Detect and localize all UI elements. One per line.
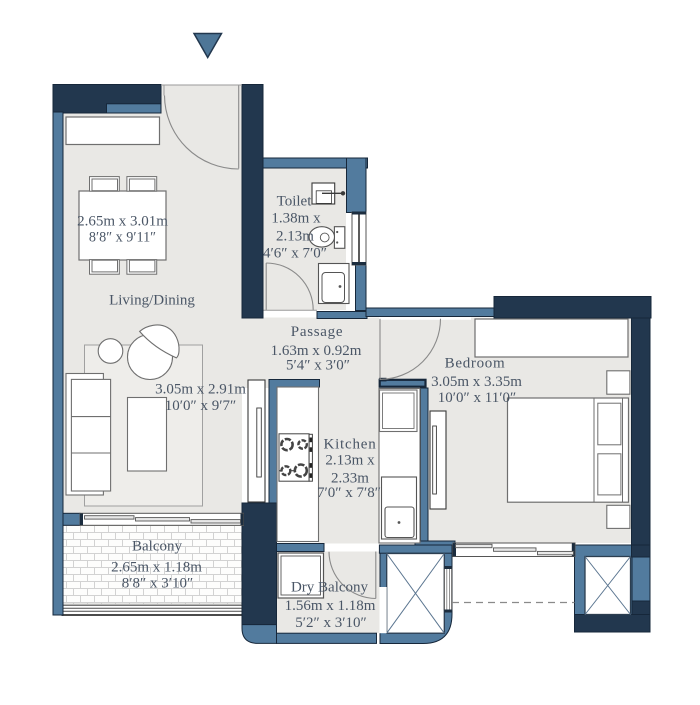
svg-text:Living/Dining: Living/Dining	[109, 293, 195, 309]
svg-text:2.13m: 2.13m	[276, 229, 314, 245]
svg-text:5′4″ x 3′0″: 5′4″ x 3′0″	[286, 358, 350, 374]
svg-text:Toilet: Toilet	[277, 194, 313, 210]
svg-text:Passage: Passage	[291, 324, 343, 340]
svg-text:8′8″ x 3′10″: 8′8″ x 3′10″	[122, 576, 194, 592]
svg-text:Kitchen: Kitchen	[323, 437, 376, 453]
svg-text:10′0″ x 11′0″: 10′0″ x 11′0″	[438, 390, 517, 406]
svg-text:2.65m x 3.01m: 2.65m x 3.01m	[77, 214, 168, 230]
svg-text:4′6″ x 7′0″: 4′6″ x 7′0″	[263, 246, 327, 262]
svg-text:Dry Balcony: Dry Balcony	[291, 580, 369, 596]
svg-text:5′2″ x 3′10″: 5′2″ x 3′10″	[295, 615, 367, 631]
svg-text:10′0″ x 9′7″: 10′0″ x 9′7″	[165, 398, 237, 414]
svg-text:1.38m x: 1.38m x	[271, 211, 321, 227]
svg-text:Balcony: Balcony	[132, 539, 182, 555]
svg-text:8′8″ x 9′11″: 8′8″ x 9′11″	[89, 230, 156, 246]
svg-text:3.05m x 3.35m: 3.05m x 3.35m	[431, 374, 522, 390]
svg-text:2.13m x: 2.13m x	[325, 453, 375, 469]
svg-text:3.05m x 2.91m: 3.05m x 2.91m	[155, 382, 246, 398]
svg-text:Bedroom: Bedroom	[445, 356, 506, 372]
svg-text:2.65m x 1.18m: 2.65m x 1.18m	[111, 560, 202, 576]
svg-text:1.56m x 1.18m: 1.56m x 1.18m	[285, 598, 376, 614]
svg-text:7′0″ x 7′8″: 7′0″ x 7′8″	[317, 485, 381, 501]
